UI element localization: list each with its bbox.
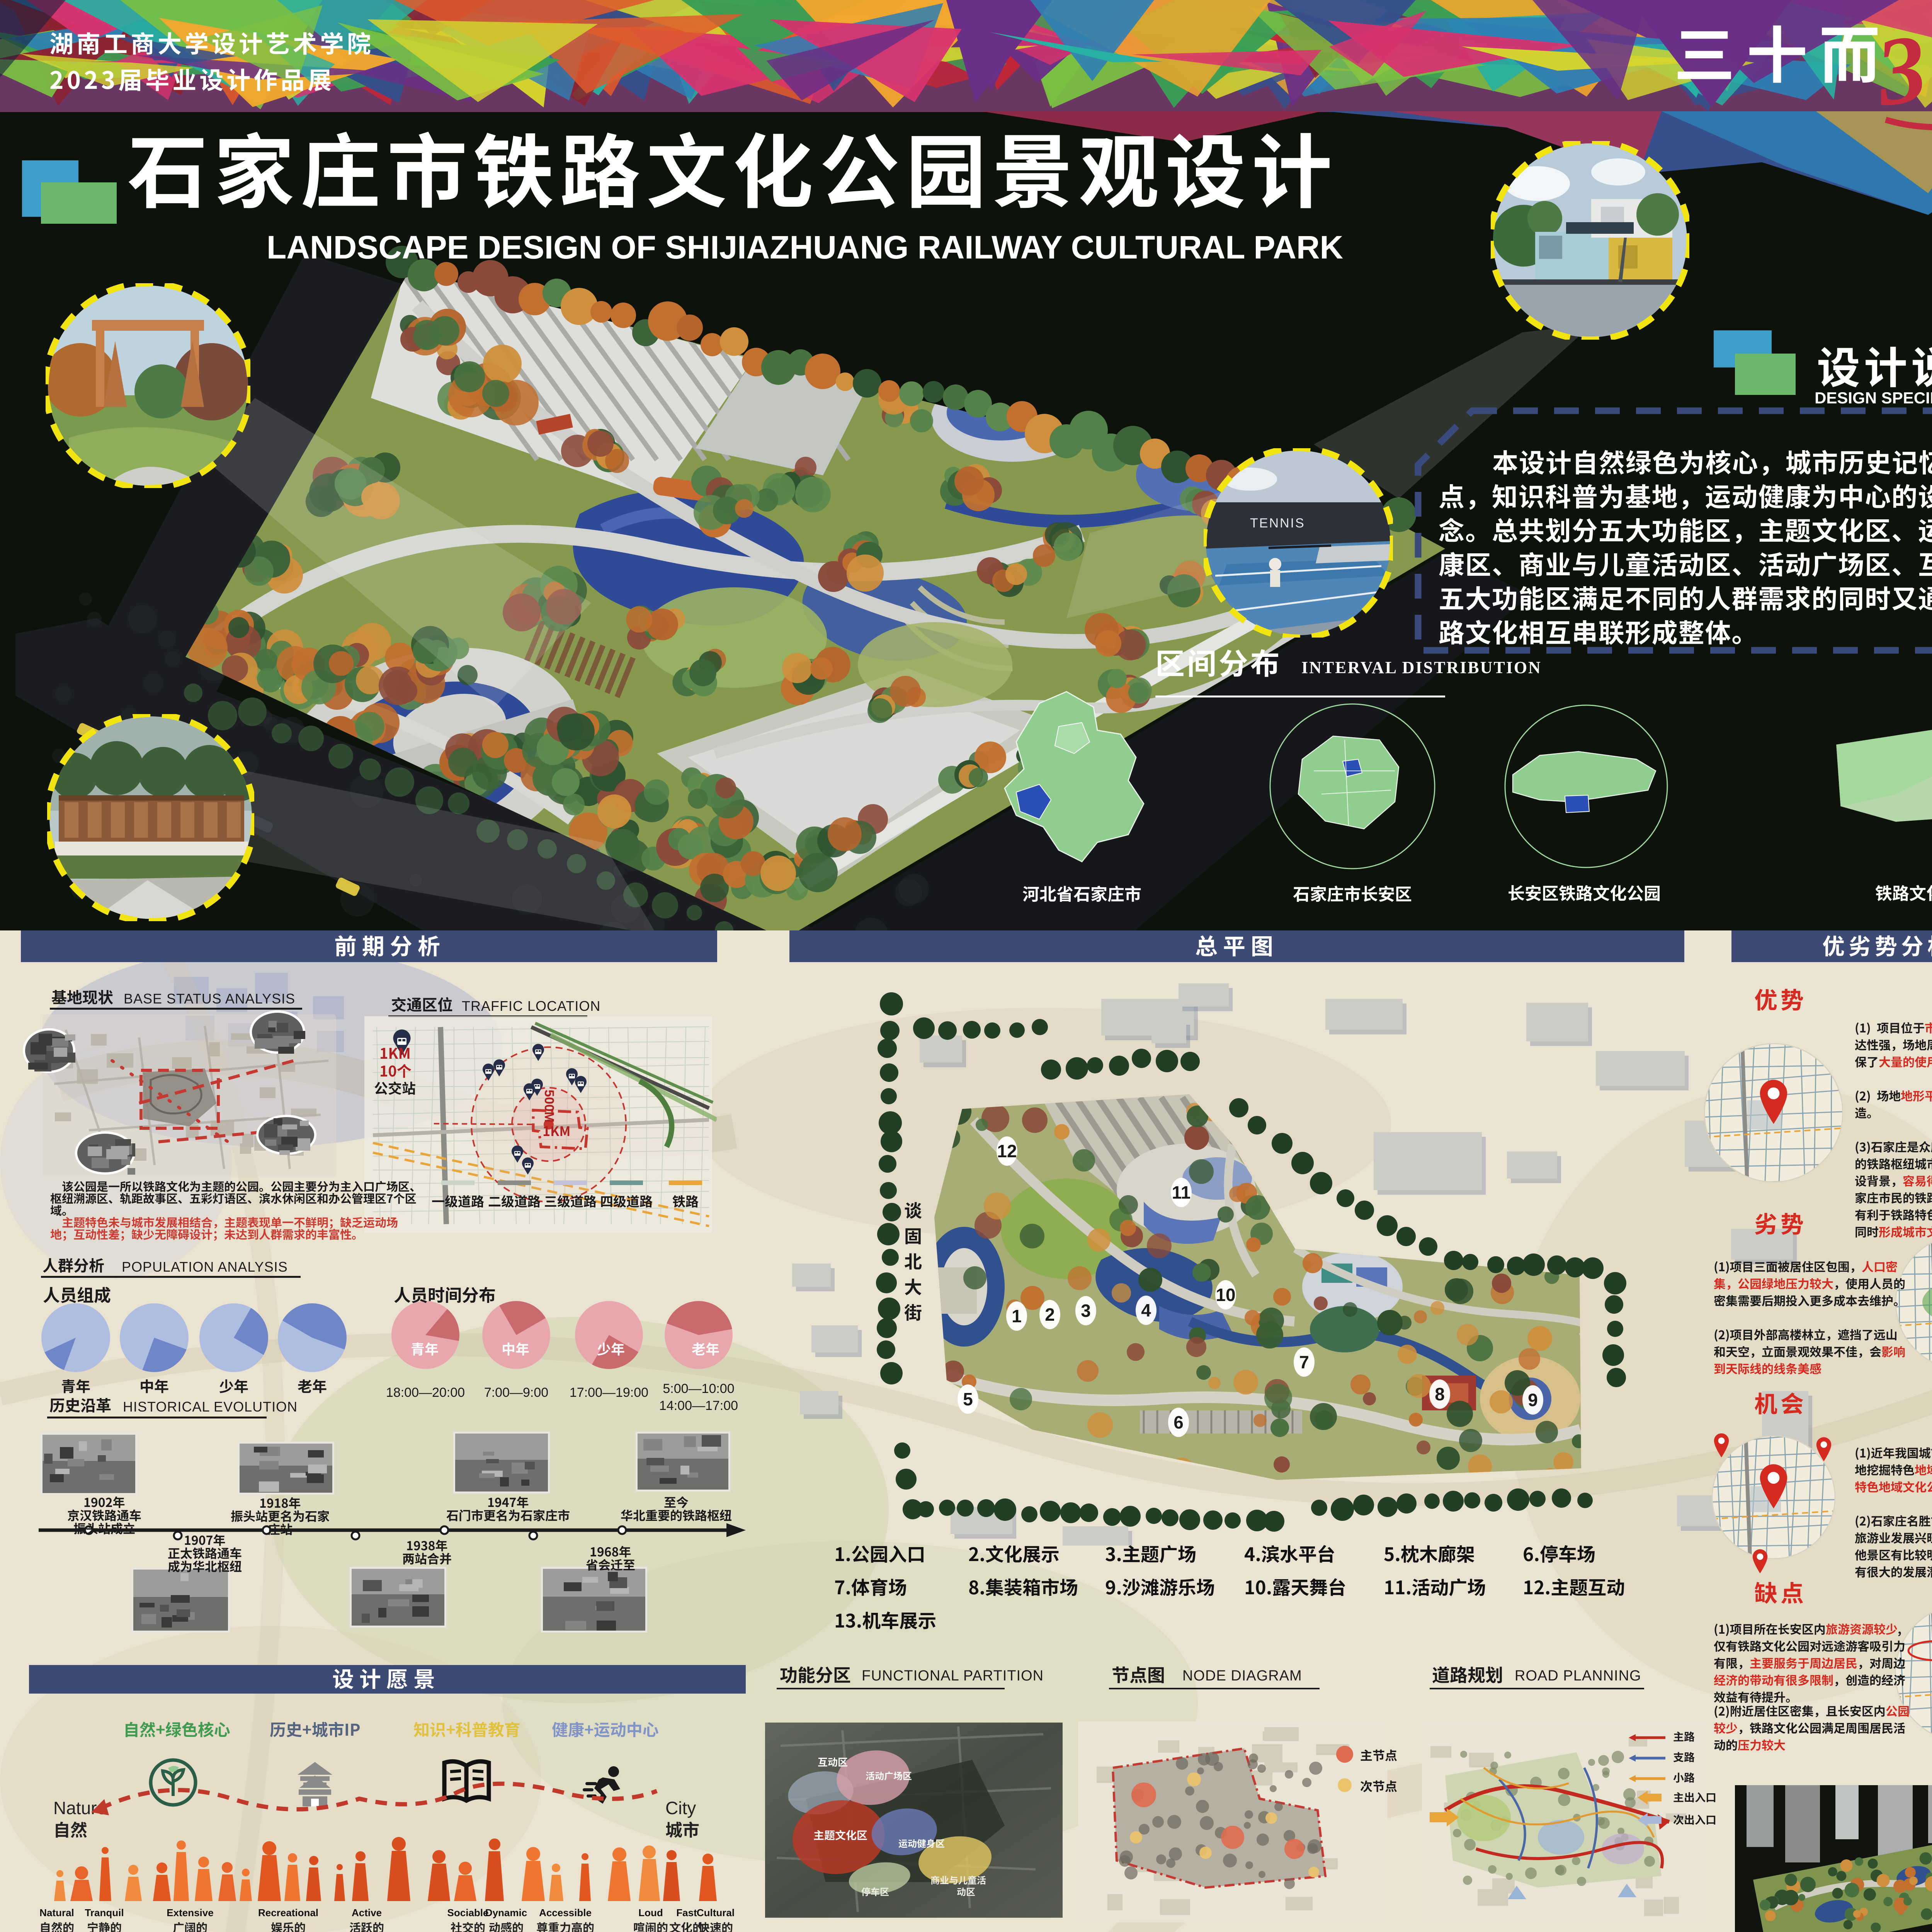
- svg-text:500M: 500M: [542, 1090, 556, 1122]
- svg-text:7: 7: [1299, 1352, 1309, 1372]
- svg-text:4: 4: [1141, 1300, 1151, 1320]
- svg-text:9: 9: [1528, 1390, 1538, 1410]
- svg-text:12: 12: [997, 1141, 1017, 1161]
- svg-text:TENNIS: TENNIS: [1250, 516, 1305, 531]
- svg-text:6: 6: [1173, 1412, 1184, 1432]
- svg-text:5: 5: [963, 1389, 973, 1409]
- svg-text:10: 10: [1216, 1285, 1235, 1305]
- svg-text:2: 2: [1045, 1304, 1055, 1325]
- svg-text:8: 8: [1435, 1384, 1445, 1404]
- svg-text:11: 11: [1172, 1182, 1191, 1202]
- svg-text:3: 3: [1081, 1301, 1091, 1321]
- svg-text:1: 1: [1012, 1306, 1022, 1326]
